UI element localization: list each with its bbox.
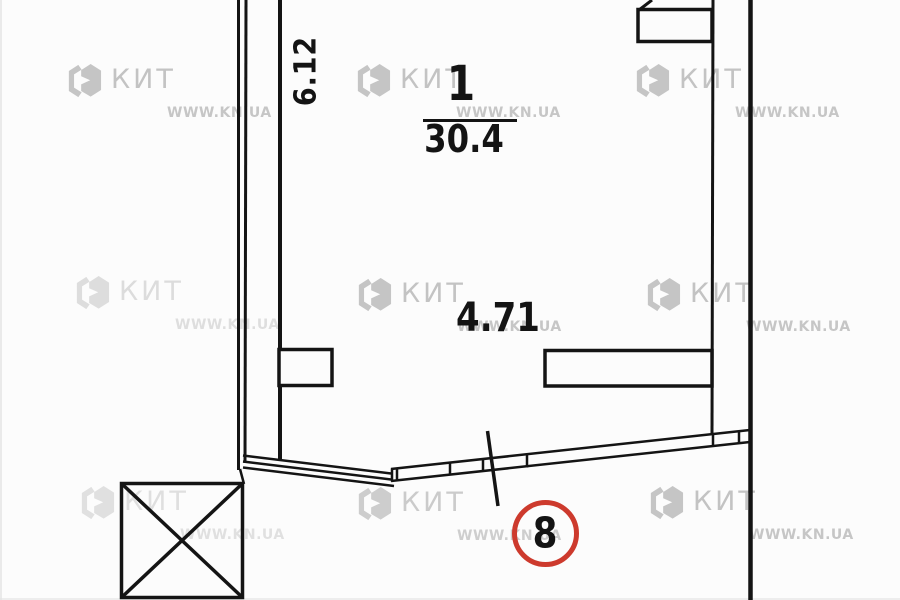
floor-plan: КИТ WWW.KN.UA КИТ WWW.KN.UA КИТ WWW.KN.U… <box>0 0 900 600</box>
room-number-label: 1 <box>447 56 475 112</box>
section-marker-label: 8 <box>533 509 558 558</box>
dimension-width-label: 4.71 <box>456 295 540 341</box>
dimension-length-label: 6.12 <box>289 36 324 106</box>
room-area-label: 30.4 <box>424 117 504 161</box>
